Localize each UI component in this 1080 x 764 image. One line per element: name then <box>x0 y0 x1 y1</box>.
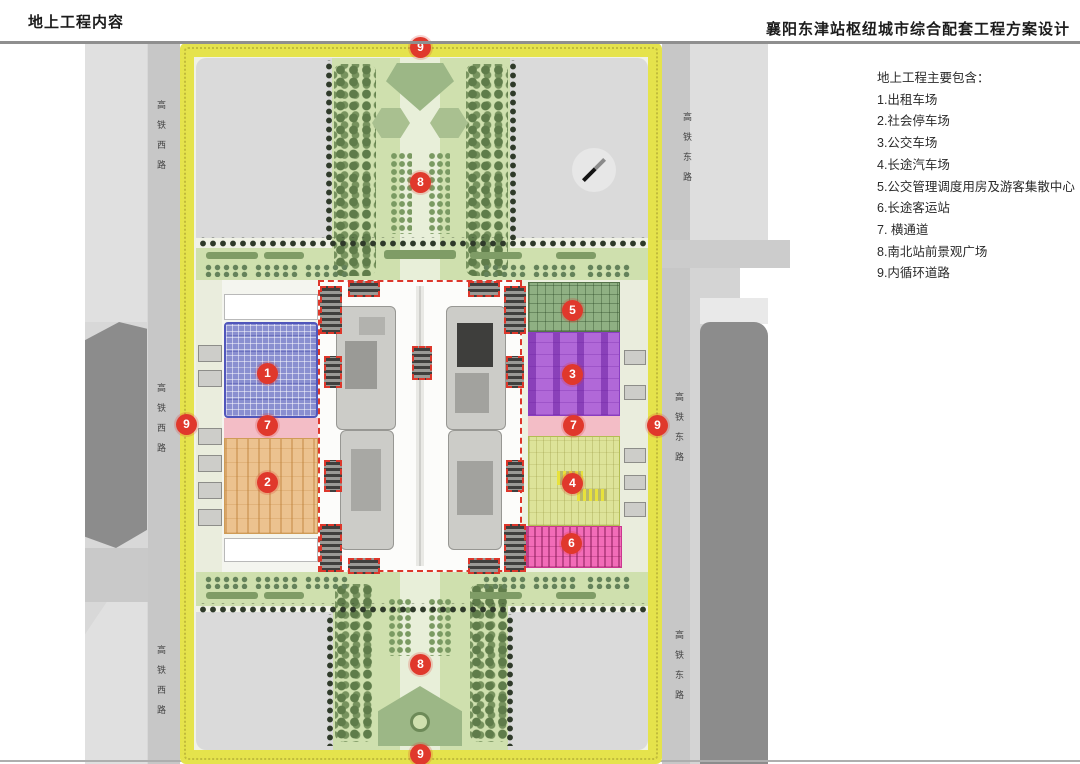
hedge <box>470 592 522 599</box>
bus-shelter <box>198 345 222 362</box>
hedge <box>470 252 522 259</box>
parcel-southwest <box>196 612 333 750</box>
station-mass-northwest <box>336 306 396 430</box>
tree-cluster <box>254 576 298 589</box>
station-core <box>506 356 524 388</box>
marker-7-passage-east: 7 <box>563 415 584 436</box>
bus-shelter <box>198 482 222 499</box>
hedge <box>264 252 304 259</box>
marker-9-ring-left: 9 <box>176 414 197 435</box>
north-tree-grid-right <box>428 152 450 234</box>
bus-shelter <box>198 455 222 472</box>
street-trees-north-row <box>196 237 648 248</box>
station-core <box>506 460 524 492</box>
road-label-west-mid: 高铁西路 <box>154 383 168 463</box>
page-title-left: 地上工程内容 <box>28 11 124 32</box>
marker-8-south-plaza: 8 <box>410 654 431 675</box>
legend-item-1: 1.出租车场 <box>877 90 1075 112</box>
road-label-west-top: 高铁西路 <box>154 100 168 180</box>
legend-item-9: 9.内循环道路 <box>877 263 1075 285</box>
road-label-east-mid: 高铁东路 <box>672 392 686 472</box>
building-mass-detail <box>351 449 381 511</box>
bus-shelter <box>624 502 646 517</box>
tree-cluster <box>304 264 348 277</box>
station-core <box>320 524 342 572</box>
legend-heading: 地上工程主要包含： <box>877 68 1075 90</box>
hedge <box>264 592 304 599</box>
tree-cluster <box>482 576 526 589</box>
road-label-east-bottom: 高铁东路 <box>672 630 686 710</box>
legend-item-4: 4.长途汽车场 <box>877 155 1075 177</box>
street-trees-southeast-edge <box>503 614 517 746</box>
parcel-northeast <box>510 58 648 238</box>
tree-cluster <box>532 576 576 589</box>
legend-item-6: 6.长途客运站 <box>877 198 1075 220</box>
tree-cluster <box>586 264 630 277</box>
north-tree-grid-left <box>390 152 412 234</box>
presentation-slide: 高铁西路 高铁西路 高铁西路 高铁东路 高铁东路 高铁东路 <box>0 0 1080 764</box>
header-divider <box>0 41 1080 44</box>
hedge <box>384 250 456 259</box>
bus-shelter <box>624 385 646 400</box>
hedge <box>556 592 596 599</box>
parcel-northwest <box>196 58 332 238</box>
tree-cluster <box>204 264 248 277</box>
street-trees-southwest-edge <box>323 614 337 746</box>
building-mass-detail <box>359 317 385 335</box>
building-mass-detail <box>455 373 489 413</box>
street-trees-northwest-edge <box>322 60 336 240</box>
road-label-east-top: 高铁东路 <box>680 112 694 192</box>
bus-shelter <box>624 475 646 490</box>
station-mass-southeast <box>448 430 502 550</box>
east-block-cap <box>700 298 768 324</box>
station-core <box>324 460 342 492</box>
tree-cluster <box>586 576 630 589</box>
station-core <box>320 286 342 334</box>
building-mass-detail <box>345 341 377 389</box>
station-corridor-line <box>419 286 421 566</box>
marker-9-ring-bottom: 9 <box>410 744 431 764</box>
west-service-lane <box>196 280 222 572</box>
parcel-southeast <box>508 612 648 750</box>
legend-item-7: 7. 横通道 <box>877 220 1075 242</box>
tree-cluster <box>482 264 526 277</box>
building-mass-detail <box>457 323 493 367</box>
street-trees-northeast-edge <box>506 60 520 240</box>
legend-item-3: 3.公交车场 <box>877 133 1075 155</box>
east-parcel-top <box>690 43 768 240</box>
marker-1-taxi: 1 <box>257 363 278 384</box>
west-parcel-bottom <box>85 602 147 764</box>
hedge <box>206 252 258 259</box>
east-branch-road <box>662 240 790 268</box>
bus-shelter <box>198 428 222 445</box>
legend-item-5: 5.公交管理调度用房及游客集散中心 <box>877 177 1075 199</box>
marker-5-dispatch-center: 5 <box>562 300 583 321</box>
coach-bay-marks <box>577 489 607 501</box>
tree-cluster <box>304 576 348 589</box>
station-core <box>348 558 380 574</box>
station-core <box>504 524 526 572</box>
marker-3-bus-yard: 3 <box>562 364 583 385</box>
bus-shelter <box>198 509 222 526</box>
road-label-west-bottom: 高铁西路 <box>154 645 168 725</box>
station-mass-southwest <box>340 430 394 550</box>
bus-shelter <box>198 370 222 387</box>
marker-7-passage-west: 7 <box>257 415 278 436</box>
tree-cluster <box>532 264 576 277</box>
marker-9-ring-right: 9 <box>647 415 668 436</box>
bus-shelter <box>624 448 646 463</box>
marker-6-coach-station: 6 <box>561 533 582 554</box>
north-arrow-needle <box>582 158 606 182</box>
tree-cluster <box>254 264 298 277</box>
pavilion-rotunda <box>410 712 430 732</box>
legend: 地上工程主要包含： 1.出租车场 2.社会停车场 3.公交车场 4.长途汽车场 … <box>877 68 1075 285</box>
page-title-right: 襄阳东津站枢纽城市综合配套工程方案设计 <box>766 18 1070 39</box>
parking-office-area <box>224 538 318 562</box>
station-core <box>504 286 526 334</box>
station-core <box>468 558 500 574</box>
legend-item-8: 8.南北站前景观广场 <box>877 242 1075 264</box>
station-core <box>468 281 500 297</box>
station-core <box>412 346 432 380</box>
station-mass-northeast <box>446 306 506 430</box>
hedge <box>556 252 596 259</box>
taxi-queue-area <box>224 294 318 320</box>
bus-shelter <box>624 350 646 365</box>
tree-cluster <box>204 576 248 589</box>
west-branch-road <box>85 548 148 602</box>
legend-item-2: 2.社会停车场 <box>877 111 1075 133</box>
west-parcel-top <box>85 43 147 322</box>
building-mass-detail <box>457 461 493 515</box>
marker-2-public-parking: 2 <box>257 472 278 493</box>
north-arrow <box>572 148 616 192</box>
east-service-lane <box>620 280 648 572</box>
marker-4-coach-yard: 4 <box>562 473 583 494</box>
station-core <box>348 281 380 297</box>
street-trees-south-row <box>196 603 648 614</box>
west-dark-block <box>85 322 147 548</box>
hedge <box>206 592 258 599</box>
marker-8-north-plaza: 8 <box>410 172 431 193</box>
east-dark-block <box>700 322 768 764</box>
station-core <box>324 356 342 388</box>
